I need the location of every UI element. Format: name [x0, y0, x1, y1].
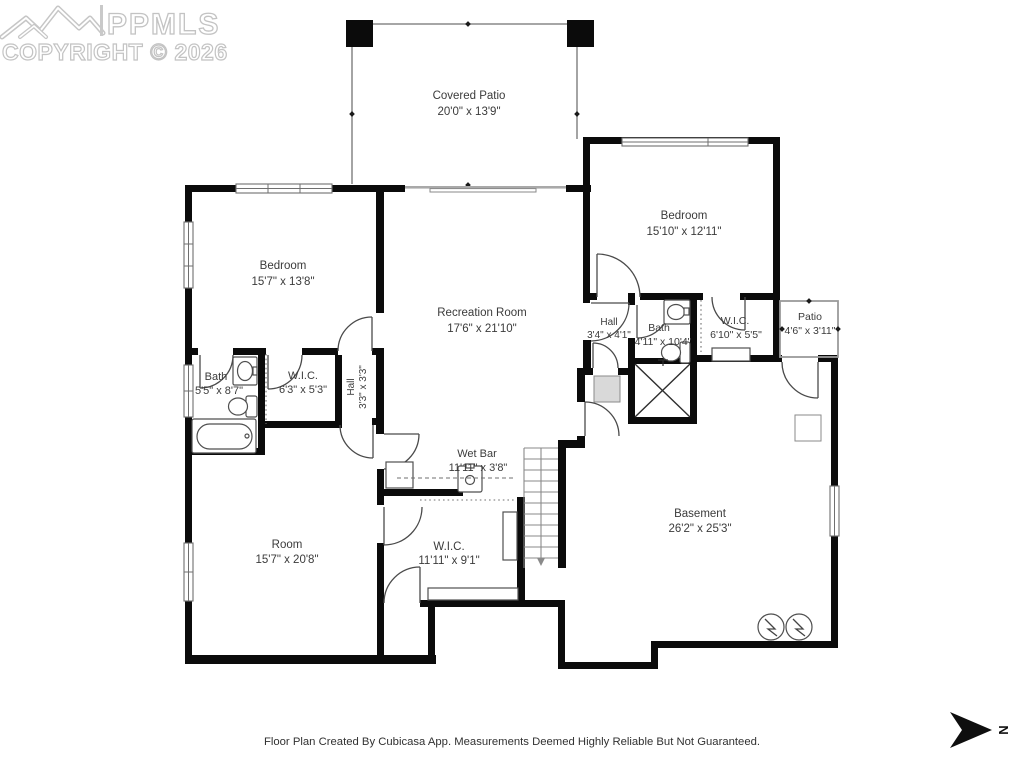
svg-text:Bath: Bath	[205, 371, 228, 383]
window-icon	[184, 365, 193, 417]
svg-text:Patio: Patio	[798, 311, 822, 323]
window-icon	[622, 138, 748, 146]
mountain-logo-icon	[2, 5, 103, 37]
svg-text:15'7" x 13'8": 15'7" x 13'8"	[251, 276, 314, 288]
sink-icon	[233, 357, 257, 385]
toilet-icon	[229, 396, 258, 417]
cabinet-icon	[386, 462, 413, 488]
svg-text:20'0" x 13'9": 20'0" x 13'9"	[437, 106, 500, 118]
window-icon	[184, 222, 193, 288]
room-label-room: Room 15'7" x 20'8"	[255, 539, 318, 566]
svg-text:3'3" x 3'3": 3'3" x 3'3"	[358, 365, 369, 409]
window-icon	[236, 184, 332, 193]
support-post-icon	[795, 415, 821, 441]
bathtub-icon	[192, 419, 256, 453]
svg-text:3'4" x 4'1": 3'4" x 4'1"	[587, 330, 631, 341]
door-icon	[585, 402, 619, 436]
disclaimer-text: Floor Plan Created By Cubicasa App. Meas…	[264, 736, 760, 748]
svg-text:6'10" x 5'5": 6'10" x 5'5"	[710, 329, 762, 341]
svg-text:Hall: Hall	[600, 317, 617, 328]
room-label-wic-bottom: W.I.C. 11'11" x 9'1"	[418, 541, 479, 567]
svg-text:Wet Bar: Wet Bar	[457, 448, 497, 460]
svg-text:15'10" x 12'11": 15'10" x 12'11"	[646, 226, 721, 238]
svg-text:6'3" x 5'3": 6'3" x 5'3"	[279, 384, 327, 396]
room-label-bath-right: Bath 4'11" x 10'4"	[635, 322, 692, 348]
svg-text:26'2" x 25'3": 26'2" x 25'3"	[668, 523, 731, 535]
svg-text:Bath: Bath	[648, 322, 670, 334]
closet-shelf-icon	[428, 588, 518, 600]
room-label-basement: Basement 26'2" x 25'3"	[668, 508, 731, 535]
svg-text:Room: Room	[272, 539, 303, 551]
svg-text:W.I.C.: W.I.C.	[288, 370, 318, 382]
room-label-recreation-room: Recreation Room 17'6" x 21'10"	[437, 307, 526, 335]
patio-post	[346, 20, 373, 47]
room-label-wet-bar: Wet Bar 11'11" x 3'8"	[449, 448, 508, 474]
furnace-icon	[786, 614, 812, 640]
room-label-wic-right: W.I.C. 6'10" x 5'5"	[710, 315, 762, 341]
floor-plan-page: PPMLS COPYRIGHT © 2026	[0, 0, 1024, 767]
floor-plan-drawing: PPMLS COPYRIGHT © 2026	[0, 0, 1024, 767]
door-icon	[593, 343, 618, 368]
svg-text:5'5" x 8'7": 5'5" x 8'7"	[195, 385, 243, 397]
door-icon	[384, 507, 422, 545]
ppmls-logo: PPMLS COPYRIGHT © 2026	[2, 5, 228, 65]
svg-text:17'6" x 21'10": 17'6" x 21'10"	[447, 323, 516, 335]
door-icon	[384, 567, 420, 603]
stairs-down-arrow-icon	[537, 558, 545, 566]
covered-patio-outline	[346, 20, 594, 188]
svg-text:15'7" x 20'8": 15'7" x 20'8"	[255, 554, 318, 566]
svg-text:Hall: Hall	[346, 378, 357, 395]
door-icon	[340, 425, 373, 458]
svg-text:Recreation Room: Recreation Room	[437, 307, 526, 319]
room-label-bedroom-right: Bedroom 15'10" x 12'11"	[646, 210, 721, 238]
svg-text:Basement: Basement	[674, 508, 727, 520]
copyright-text: COPYRIGHT © 2026	[2, 39, 228, 65]
door-icon	[597, 254, 640, 297]
door-icon	[782, 362, 818, 398]
svg-text:11'11" x 9'1": 11'11" x 9'1"	[418, 555, 479, 567]
svg-text:4'6" x 3'11": 4'6" x 3'11"	[785, 325, 836, 337]
closet-shelf-icon	[503, 512, 517, 560]
north-label: N	[996, 725, 1011, 734]
north-arrow-icon: N	[950, 712, 1011, 748]
room-label-bedroom-left: Bedroom 15'7" x 13'8"	[251, 260, 314, 288]
door-icon	[338, 317, 372, 351]
room-label-wic-left: W.I.C. 6'3" x 5'3"	[279, 370, 327, 396]
window-icon	[830, 486, 839, 536]
svg-text:Bedroom: Bedroom	[260, 260, 307, 272]
sink-icon	[664, 300, 690, 324]
room-label-covered-patio: Covered Patio 20'0" x 13'9"	[433, 90, 506, 118]
svg-text:11'11" x 3'8": 11'11" x 3'8"	[449, 462, 508, 474]
svg-text:Covered Patio: Covered Patio	[433, 90, 506, 102]
water-heater-icon	[758, 614, 784, 640]
patio-post	[567, 20, 594, 47]
stairs-icon	[524, 448, 558, 568]
logo-text: PPMLS	[107, 8, 220, 41]
svg-text:W.I.C.: W.I.C.	[721, 315, 750, 327]
support-post-icon	[594, 376, 620, 402]
room-label-patio-right: Patio 4'6" x 3'11"	[785, 311, 836, 337]
room-label-hall-left: Hall 3'3" x 3'3"	[346, 365, 369, 409]
room-labels: Covered Patio 20'0" x 13'9" Bedroom 15'1…	[195, 90, 836, 567]
window-icon	[184, 543, 193, 601]
closet-shelf-icon	[712, 348, 750, 361]
svg-text:Bedroom: Bedroom	[661, 210, 708, 222]
svg-text:W.I.C.: W.I.C.	[433, 541, 464, 553]
svg-text:4'11" x 10'4": 4'11" x 10'4"	[635, 336, 692, 348]
sliding-door-icon	[405, 186, 566, 192]
shower-icon	[635, 360, 690, 417]
